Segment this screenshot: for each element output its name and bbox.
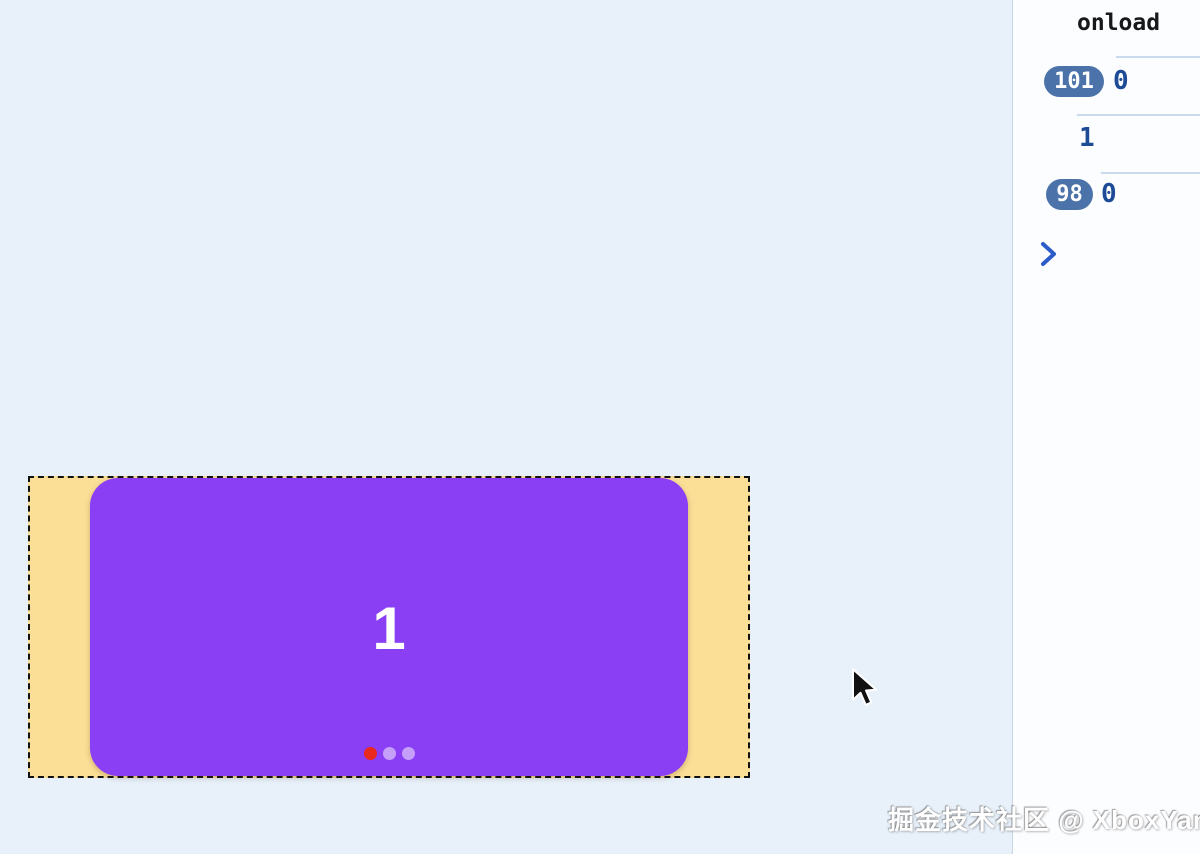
chevron-right-icon[interactable] [1039, 240, 1059, 268]
console-title: onload [1077, 10, 1160, 36]
log-value: 0 [1113, 66, 1129, 97]
pagination-dot[interactable] [402, 747, 415, 760]
active-slide[interactable]: 1 [90, 478, 688, 776]
console-panel: onload 101 0 1 98 0 [1012, 0, 1200, 854]
pagination-dot[interactable] [364, 747, 377, 760]
watermark-text: 掘金技术社区 @ XboxYan [888, 800, 1200, 837]
app-window: 1 onload 101 0 1 98 0 掘金技术社区 @ XboxYan [0, 0, 1200, 854]
carousel-container: 1 [28, 476, 750, 778]
log-repeat-count-badge: 101 [1044, 66, 1104, 97]
row-divider [1077, 114, 1200, 116]
log-value: 1 [1079, 123, 1095, 154]
slide-number: 1 [372, 599, 405, 659]
log-value: 0 [1101, 179, 1117, 210]
demo-preview-pane: 1 [0, 0, 1012, 854]
pagination-dots [90, 747, 688, 760]
pagination-dot[interactable] [383, 747, 396, 760]
log-repeat-count-badge: 98 [1046, 179, 1093, 210]
row-divider [1116, 56, 1200, 58]
row-divider [1101, 172, 1200, 174]
mouse-cursor-icon [848, 668, 878, 708]
